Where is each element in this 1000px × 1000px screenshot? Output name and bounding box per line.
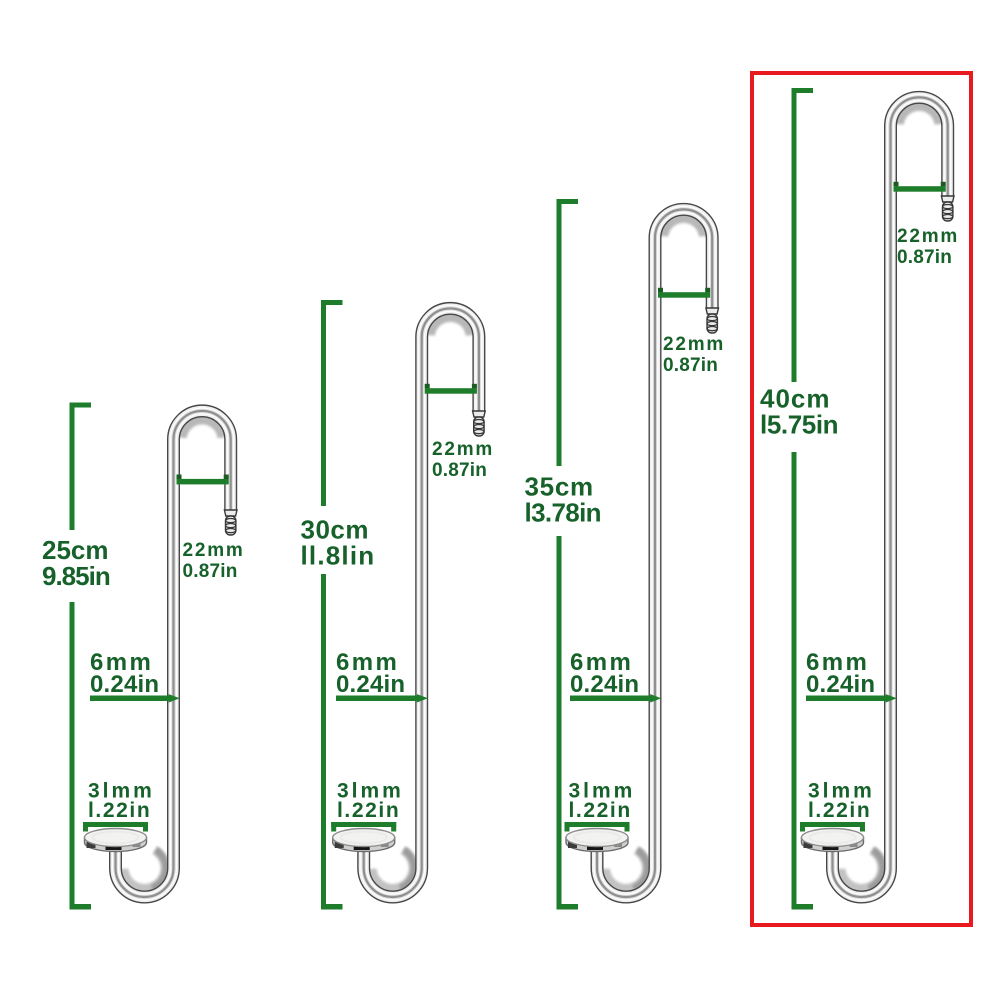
svg-text:0.24in: 0.24in (806, 671, 875, 698)
svg-text:l.22in: l.22in (569, 799, 632, 822)
svg-text:0.24in: 0.24in (570, 671, 639, 698)
svg-text:l3.78in: l3.78in (525, 498, 601, 528)
svg-text:l.22in: l.22in (88, 799, 151, 822)
svg-text:0.87in: 0.87in (897, 247, 952, 268)
svg-text:0.87in: 0.87in (183, 561, 238, 582)
svg-text:22mm: 22mm (663, 334, 725, 355)
svg-text:ll.8lin: ll.8lin (301, 541, 376, 571)
svg-text:9.85in: 9.85in (42, 561, 110, 591)
svg-text:22mm: 22mm (432, 439, 494, 460)
svg-text:0.24in: 0.24in (90, 671, 159, 698)
svg-text:22mm: 22mm (897, 226, 959, 247)
svg-text:l.22in: l.22in (337, 799, 400, 822)
svg-text:0.24in: 0.24in (336, 671, 405, 698)
svg-text:22mm: 22mm (183, 540, 245, 561)
svg-text:l5.75in: l5.75in (760, 410, 838, 440)
svg-text:l.22in: l.22in (808, 799, 871, 822)
svg-text:0.87in: 0.87in (663, 355, 718, 376)
svg-text:0.87in: 0.87in (432, 460, 487, 481)
